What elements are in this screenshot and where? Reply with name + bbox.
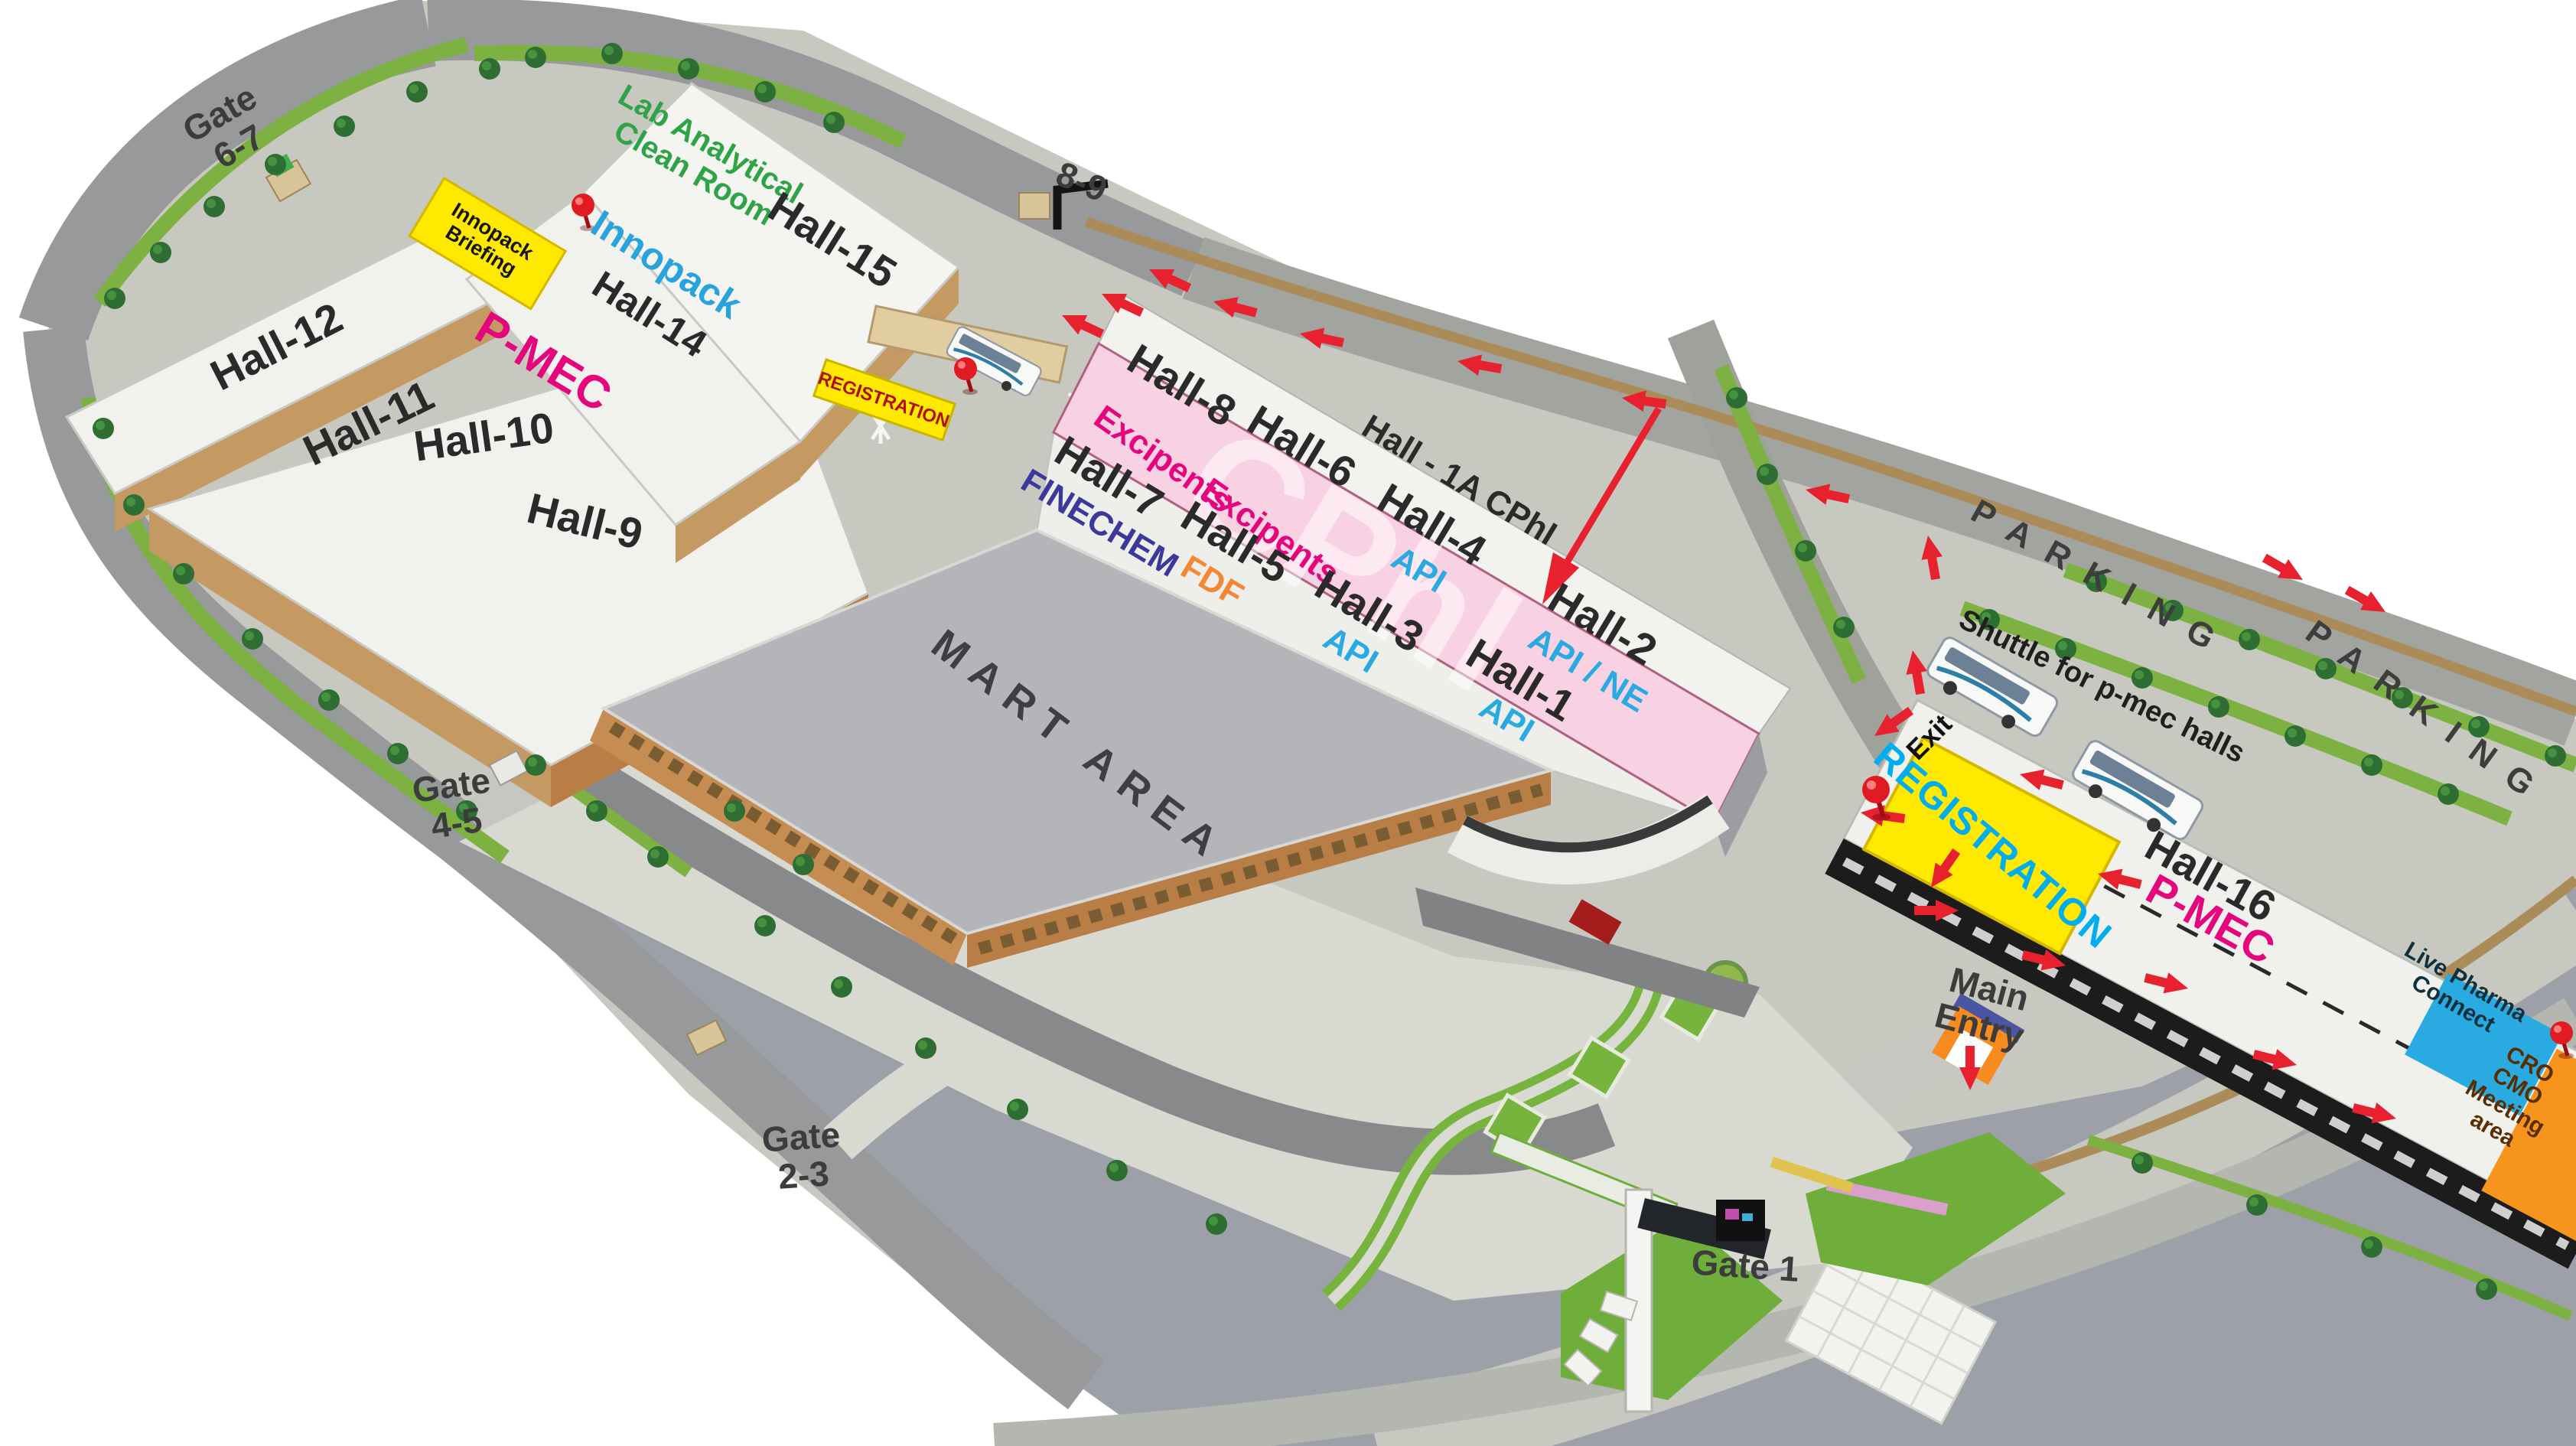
gate1-screen	[1716, 1200, 1765, 1241]
venue-map: InnopackBriefing REGISTRATION CPhI Gate6…	[0, 0, 2576, 1446]
gate89-booth	[1019, 193, 1050, 219]
gate-1-label: Gate 1	[1690, 1242, 1800, 1289]
